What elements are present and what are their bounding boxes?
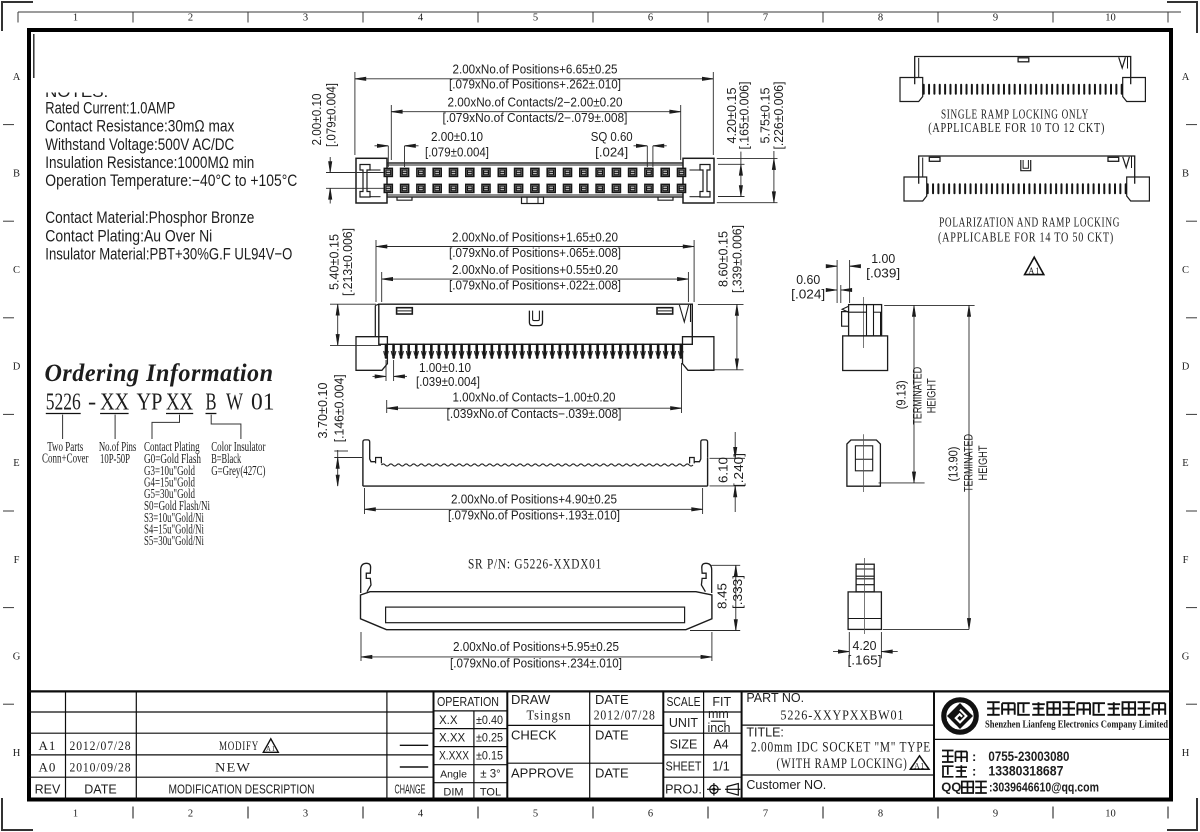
svg-text:(WITH RAMP LOCKING): (WITH RAMP LOCKING) [777,756,908,772]
svg-text:(13.90): (13.90) [946,447,961,482]
svg-text:MODIFICATION DESCRIPTION: MODIFICATION DESCRIPTION [169,783,315,797]
svg-text:[.079xNo.of Positions+.022±.0: [.079xNo.of Positions+.022±.008] [449,278,621,292]
svg-text::: : [972,749,976,764]
svg-text:X.XXX: X.XXX [439,751,469,763]
svg-text:1.00xNo.of Contacts−1.00±0.20: 1.00xNo.of Contacts−1.00±0.20 [453,391,616,405]
svg-text:W: W [226,388,244,415]
svg-text:5226: 5226 [46,388,81,415]
svg-text:DATE: DATE [595,728,629,743]
svg-text:X.XX: X.XX [439,733,466,745]
svg-text:SQ 0.60: SQ 0.60 [591,130,633,144]
svg-text:1.00: 1.00 [871,252,895,266]
svg-text:[.039±0.004]: [.039±0.004] [416,375,480,389]
svg-text:± 3°: ± 3° [480,769,501,781]
svg-text:SHEET: SHEET [666,760,702,774]
svg-text:2.00xNo.of Contacts/2−2.00±0.: 2.00xNo.of Contacts/2−2.00±0.20 [448,96,623,110]
svg-text:2.00±0.10: 2.00±0.10 [431,130,483,144]
svg-text:REV: REV [35,783,61,797]
svg-text:HEIGHT: HEIGHT [927,378,939,413]
svg-text:H: H [13,748,21,759]
svg-text:8.60±0.15: 8.60±0.15 [717,231,731,287]
svg-text:Insulation Resistance:1000MΩ m: Insulation Resistance:1000MΩ min [45,153,254,172]
svg-text:XX: XX [166,388,193,415]
svg-text:8: 8 [878,809,883,820]
svg-text:4: 4 [418,809,424,820]
svg-text:[.039xNo.of Contacts−.039±.00: [.039xNo.of Contacts−.039±.008] [447,407,622,421]
svg-text:A0: A0 [39,760,57,775]
svg-text:2010/09/28: 2010/09/28 [70,760,132,775]
svg-text:G: G [13,651,21,662]
svg-text:DATE: DATE [595,692,629,707]
svg-text:B: B [206,388,217,415]
svg-text:MODIFY: MODIFY [219,738,259,753]
svg-text:A: A [1182,72,1190,83]
svg-text:5226-XXYPXXBW01: 5226-XXYPXXBW01 [780,709,904,724]
svg-text:A4: A4 [713,738,728,752]
svg-text:Withstand Voltage:500V AC/DC: Withstand Voltage:500V AC/DC [45,135,234,154]
svg-text:13380318687: 13380318687 [988,764,1063,779]
svg-text:DRAW: DRAW [511,692,551,707]
svg-text:7: 7 [763,13,768,24]
svg-text:2012/07/28: 2012/07/28 [70,738,132,753]
svg-text:D: D [13,362,21,373]
svg-text:G: G [1182,651,1190,662]
svg-text:Shenzhen Lianfeng Electronics: Shenzhen Lianfeng Electronics Company Li… [985,719,1168,730]
svg-text:C: C [1182,265,1189,276]
svg-text:HEIGHT: HEIGHT [978,446,990,481]
svg-text:2.00mm IDC SOCKET "M" TYPE: 2.00mm IDC SOCKET "M" TYPE [751,740,931,756]
svg-text:2.00xNo.of Positions+0.55±0.2: 2.00xNo.of Positions+0.55±0.20 [452,263,618,277]
svg-text:±0.40: ±0.40 [476,715,503,727]
svg-text:Contact Resistance:30mΩ max: Contact Resistance:30mΩ max [45,117,234,136]
svg-text:5: 5 [533,13,538,24]
svg-text:±0.15: ±0.15 [476,751,503,763]
svg-text:6: 6 [648,809,653,820]
svg-text:0755-23003080: 0755-23003080 [988,749,1069,764]
svg-text:2.00xNo.of Positions+4.90±0.2: 2.00xNo.of Positions+4.90±0.25 [451,492,617,506]
svg-text:Insulator Material:PBT+30%G.F: Insulator Material:PBT+30%G.F UL94V−O [45,245,292,264]
svg-text:[.024]: [.024] [595,146,628,160]
svg-text:3: 3 [303,13,308,24]
svg-text:[.226±0.006]: [.226±0.006] [772,82,786,150]
svg-text:Operation Temperature:−40°C to: Operation Temperature:−40°C to +105°C [45,171,297,190]
svg-text:Rated Current:1.0AMP: Rated Current:1.0AMP [45,98,175,117]
svg-text:(APPLICABLE FOR 14 TO 50 CKT): (APPLICABLE FOR 14 TO 50 CKT) [938,229,1114,244]
svg-text:[.079±0.004]: [.079±0.004] [324,83,338,147]
svg-text:1.00±0.10: 1.00±0.10 [419,361,471,375]
svg-text:[.165]: [.165] [848,654,882,668]
svg-text:5.40±0.15: 5.40±0.15 [328,234,342,290]
svg-text:4: 4 [418,13,424,24]
svg-text:2.00xNo.of Positions+1.65±0.2: 2.00xNo.of Positions+1.65±0.20 [452,231,618,245]
svg-text:A1: A1 [1028,266,1040,276]
svg-text:[.079xNo.of Positions+.065±.0: [.079xNo.of Positions+.065±.008] [449,246,621,260]
svg-text:Customer NO.: Customer NO. [746,778,826,792]
svg-text:Contact Plating:Au Over Ni: Contact Plating:Au Over Ni [45,226,212,245]
svg-text:XX: XX [100,388,129,415]
svg-text:10: 10 [1105,809,1116,820]
svg-text:DIM: DIM [443,787,463,799]
svg-text:[.039]: [.039] [866,267,900,281]
svg-text:01: 01 [251,388,275,415]
svg-text:2012/07/28: 2012/07/28 [594,708,656,723]
svg-text:[.079xNo.of Positions+.234±.0: [.079xNo.of Positions+.234±.010] [450,656,622,670]
svg-text:H: H [1182,748,1190,759]
svg-text:Conn+Cover: Conn+Cover [42,450,89,465]
svg-text:1: 1 [73,13,78,24]
svg-text:[.240]: [.240] [732,453,746,487]
svg-text:[.213±0.006]: [.213±0.006] [341,228,355,296]
svg-text:6.10: 6.10 [717,457,731,483]
svg-text:2: 2 [188,13,193,24]
svg-text:[.339±0.006]: [.339±0.006] [731,225,745,293]
svg-text:(9.13): (9.13) [894,380,909,409]
svg-text:B: B [1182,168,1189,179]
svg-text:A1: A1 [914,761,925,770]
svg-text:4.20: 4.20 [853,639,877,653]
svg-text:8.45: 8.45 [716,583,730,609]
svg-text:A1: A1 [39,738,57,753]
svg-text:TERMINATED: TERMINATED [913,367,925,425]
svg-text:UNIT: UNIT [669,716,699,730]
svg-text:DATE: DATE [595,765,629,780]
svg-text:Contact Material:Phosphor Bron: Contact Material:Phosphor Bronze [45,208,254,227]
svg-text:Tsingsn: Tsingsn [527,708,572,723]
svg-text:1: 1 [73,809,78,820]
svg-text:A: A [13,72,21,83]
svg-text:9: 9 [993,13,998,24]
svg-text:SCALE: SCALE [667,695,701,709]
svg-text:0.60: 0.60 [796,273,820,287]
svg-text:[.079xNo.of Positions+.193±.0: [.079xNo.of Positions+.193±.010] [448,509,620,523]
svg-text::: : [972,764,976,779]
svg-text:[.079xNo.of Positions+.262±.0: [.079xNo.of Positions+.262±.010] [449,78,621,92]
svg-text:E: E [1182,458,1188,469]
svg-text:1/1: 1/1 [712,760,729,774]
svg-text:QQ: QQ [941,780,961,795]
svg-text:[.079xNo.of Contacts/2−.079±.: [.079xNo.of Contacts/2−.079±.008] [443,111,628,125]
svg-text:G=Grey(427C): G=Grey(427C) [211,463,265,478]
svg-text:B: B [13,168,20,179]
svg-text:9: 9 [993,809,998,820]
svg-text:C: C [13,265,20,276]
svg-text:5.75±0.15: 5.75±0.15 [759,87,773,143]
svg-text:TERMINATED: TERMINATED [964,434,976,492]
svg-text:3.70±0.10: 3.70±0.10 [316,382,330,438]
svg-text:[.024]: [.024] [791,288,825,302]
svg-text:APPROVE: APPROVE [511,765,574,780]
svg-text:(APPLICABLE FOR 10 TO 12 CKT): (APPLICABLE FOR 10 TO 12 CKT) [928,120,1105,135]
svg-text:X.X: X.X [439,715,458,727]
svg-text:2.00xNo.of Positions+6.65±0.2: 2.00xNo.of Positions+6.65±0.25 [453,62,618,76]
svg-text:PART NO.: PART NO. [746,691,804,705]
svg-text:YP: YP [137,388,163,415]
svg-text:inch: inch [708,721,731,735]
svg-text:[.146±0.004]: [.146±0.004] [333,374,347,442]
svg-text:NEW: NEW [215,760,251,775]
svg-text:8: 8 [878,13,883,24]
svg-text:2.00±0.10: 2.00±0.10 [310,93,324,145]
svg-text:D: D [1182,362,1190,373]
svg-text:7: 7 [763,809,768,820]
svg-text:POLARIZATION AND RAMP LOCKING: POLARIZATION AND RAMP LOCKING [939,215,1120,230]
svg-text:4.20±0.15: 4.20±0.15 [725,87,739,143]
svg-text:2: 2 [188,809,193,820]
svg-text:2.00xNo.of Positions+5.95±0.2: 2.00xNo.of Positions+5.95±0.25 [453,640,619,654]
svg-text:S5=30u"Gold/Ni: S5=30u"Gold/Ni [144,533,204,548]
svg-text:A1: A1 [266,744,276,753]
svg-text:CHANGE: CHANGE [395,783,426,797]
svg-text:Angle: Angle [440,769,467,781]
svg-text:10P-50P: 10P-50P [100,451,130,466]
svg-text:TITLE:: TITLE: [746,726,784,740]
svg-text:3: 3 [303,809,308,820]
svg-text:SIZE: SIZE [670,738,698,752]
svg-text:-: - [88,388,96,415]
svg-text:6: 6 [648,13,653,24]
svg-text:±0.25: ±0.25 [476,733,503,745]
svg-text:[.333]: [.333] [731,575,745,609]
svg-text:SR P/N: G5226-XXDX01: SR P/N: G5226-XXDX01 [468,557,602,573]
svg-text:10: 10 [1105,13,1116,24]
svg-text:F: F [1183,555,1189,566]
svg-text:Ordering Information: Ordering Information [45,360,274,387]
svg-text:PROJ.: PROJ. [665,783,702,797]
svg-text:CHECK: CHECK [511,728,557,743]
svg-text::3039646610@qq.com: :3039646610@qq.com [989,780,1099,795]
svg-text:OPERATION: OPERATION [437,695,499,709]
svg-text:TOL: TOL [480,787,501,799]
svg-text:mm: mm [708,707,729,721]
svg-text:E: E [13,458,19,469]
svg-text:F: F [14,555,20,566]
svg-text:[.165±0.006]: [.165±0.006] [738,82,752,150]
svg-text:[.079±0.004]: [.079±0.004] [425,146,489,160]
svg-text:DATE: DATE [84,783,116,797]
svg-text:5: 5 [533,809,538,820]
